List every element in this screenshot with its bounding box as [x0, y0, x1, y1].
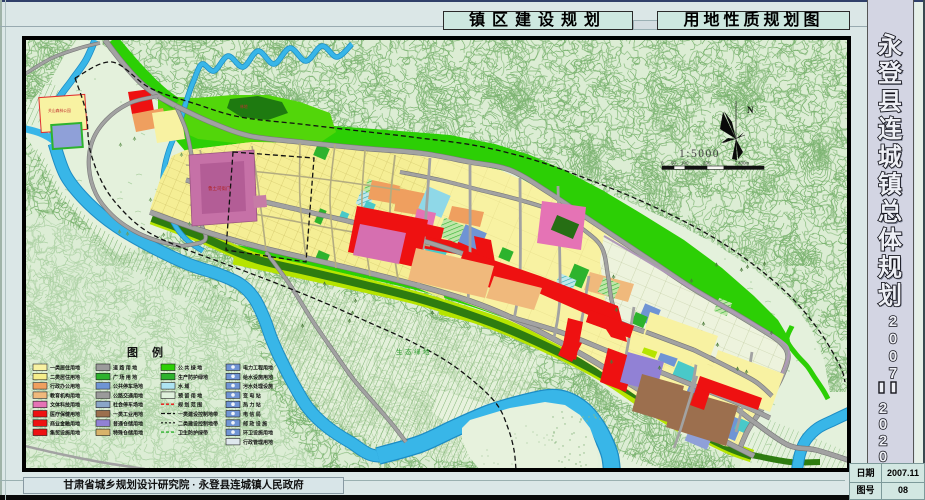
svg-text:一类工业用地: 一类工业用地 [113, 411, 143, 418]
svg-text:卫生防护绿带: 卫生防护绿带 [178, 430, 208, 437]
svg-text:商业金融用地: 商业金融用地 [50, 420, 80, 427]
svg-text:镇: 镇 [878, 172, 902, 199]
svg-text:行政管理用地: 行政管理用地 [242, 439, 273, 446]
svg-text:0: 0 [879, 449, 887, 463]
svg-text:行政办公用地: 行政办公用地 [49, 383, 80, 390]
svg-text:公路交通用地: 公路交通用地 [113, 392, 143, 399]
svg-text:二类建设控制地带: 二类建设控制地带 [178, 420, 218, 427]
svg-text:邮 政 设 施: 邮 政 设 施 [243, 420, 267, 427]
svg-text:规: 规 [878, 255, 902, 282]
svg-text:永: 永 [878, 33, 902, 60]
svg-text:变 电 站: 变 电 站 [243, 392, 261, 399]
svg-text:医疗保健用地: 医疗保健用地 [50, 411, 80, 418]
svg-text:200: 200 [703, 161, 711, 166]
svg-text:林地: 林地 [240, 104, 248, 109]
svg-text:电力工程用地: 电力工程用地 [243, 365, 273, 372]
svg-text:400m: 400m [738, 161, 750, 166]
svg-text:0: 0 [889, 348, 897, 365]
svg-text:一类居住用地: 一类居住用地 [50, 365, 80, 372]
svg-text:特殊仓储用地: 特殊仓储用地 [113, 430, 143, 437]
svg-text:2: 2 [879, 400, 887, 417]
svg-text:7: 7 [889, 365, 897, 382]
svg-text:普通仓储用地: 普通仓储用地 [113, 420, 143, 427]
svg-text:二类居住用地: 二类居住用地 [50, 374, 80, 381]
svg-text:生态绿地: 生态绿地 [396, 347, 432, 356]
svg-text:100: 100 [681, 161, 689, 166]
svg-text:公 共 绿 地: 公 共 绿 地 [178, 365, 202, 372]
svg-text:50: 50 [671, 161, 677, 166]
svg-text:水 域: 水 域 [177, 383, 189, 390]
svg-text:污水处理设施: 污水处理设施 [243, 383, 273, 390]
svg-text:电 信 局: 电 信 局 [243, 411, 261, 418]
svg-text:社会停车场地: 社会停车场地 [112, 402, 143, 409]
svg-text:2: 2 [889, 313, 897, 330]
svg-text:0: 0 [879, 416, 887, 433]
svg-text:体: 体 [878, 227, 903, 254]
svg-text:生产防护绿地: 生产防护绿地 [178, 374, 208, 381]
svg-text:公共停车场地: 公共停车场地 [113, 383, 143, 390]
svg-text:N: N [747, 105, 754, 115]
svg-text:县: 县 [878, 88, 902, 115]
svg-text:鲁土司衙门: 鲁土司衙门 [208, 185, 231, 192]
svg-text:给水设施用地: 给水设施用地 [243, 374, 273, 381]
svg-text:一类建设控制地带: 一类建设控制地带 [178, 411, 218, 418]
svg-text:登: 登 [877, 61, 903, 88]
svg-text:总: 总 [878, 198, 902, 226]
svg-text:文体科技用地: 文体科技用地 [50, 402, 80, 409]
svg-text:环卫设施用地: 环卫设施用地 [243, 430, 273, 437]
svg-text:城: 城 [878, 143, 902, 171]
svg-text:广 场 用 地: 广 场 用 地 [113, 374, 137, 381]
svg-text:连: 连 [878, 115, 903, 143]
svg-text:1:5000: 1:5000 [679, 148, 720, 160]
svg-text:规 划 范 围: 规 划 范 围 [178, 402, 202, 409]
svg-text:道 路 用 地: 道 路 用 地 [113, 365, 137, 372]
svg-text:图例: 图例 [127, 345, 177, 359]
svg-text:0: 0 [889, 330, 897, 347]
svg-text:教育机构用地: 教育机构用地 [49, 392, 80, 399]
svg-text:2: 2 [879, 432, 887, 449]
svg-text:预 留 用 地: 预 留 用 地 [178, 392, 202, 399]
svg-text:集贸设施用地: 集贸设施用地 [49, 430, 80, 437]
svg-text:热 力 站: 热 力 站 [243, 402, 261, 409]
svg-text:划: 划 [878, 282, 902, 309]
svg-text:关山森林公园: 关山森林公园 [48, 108, 71, 113]
